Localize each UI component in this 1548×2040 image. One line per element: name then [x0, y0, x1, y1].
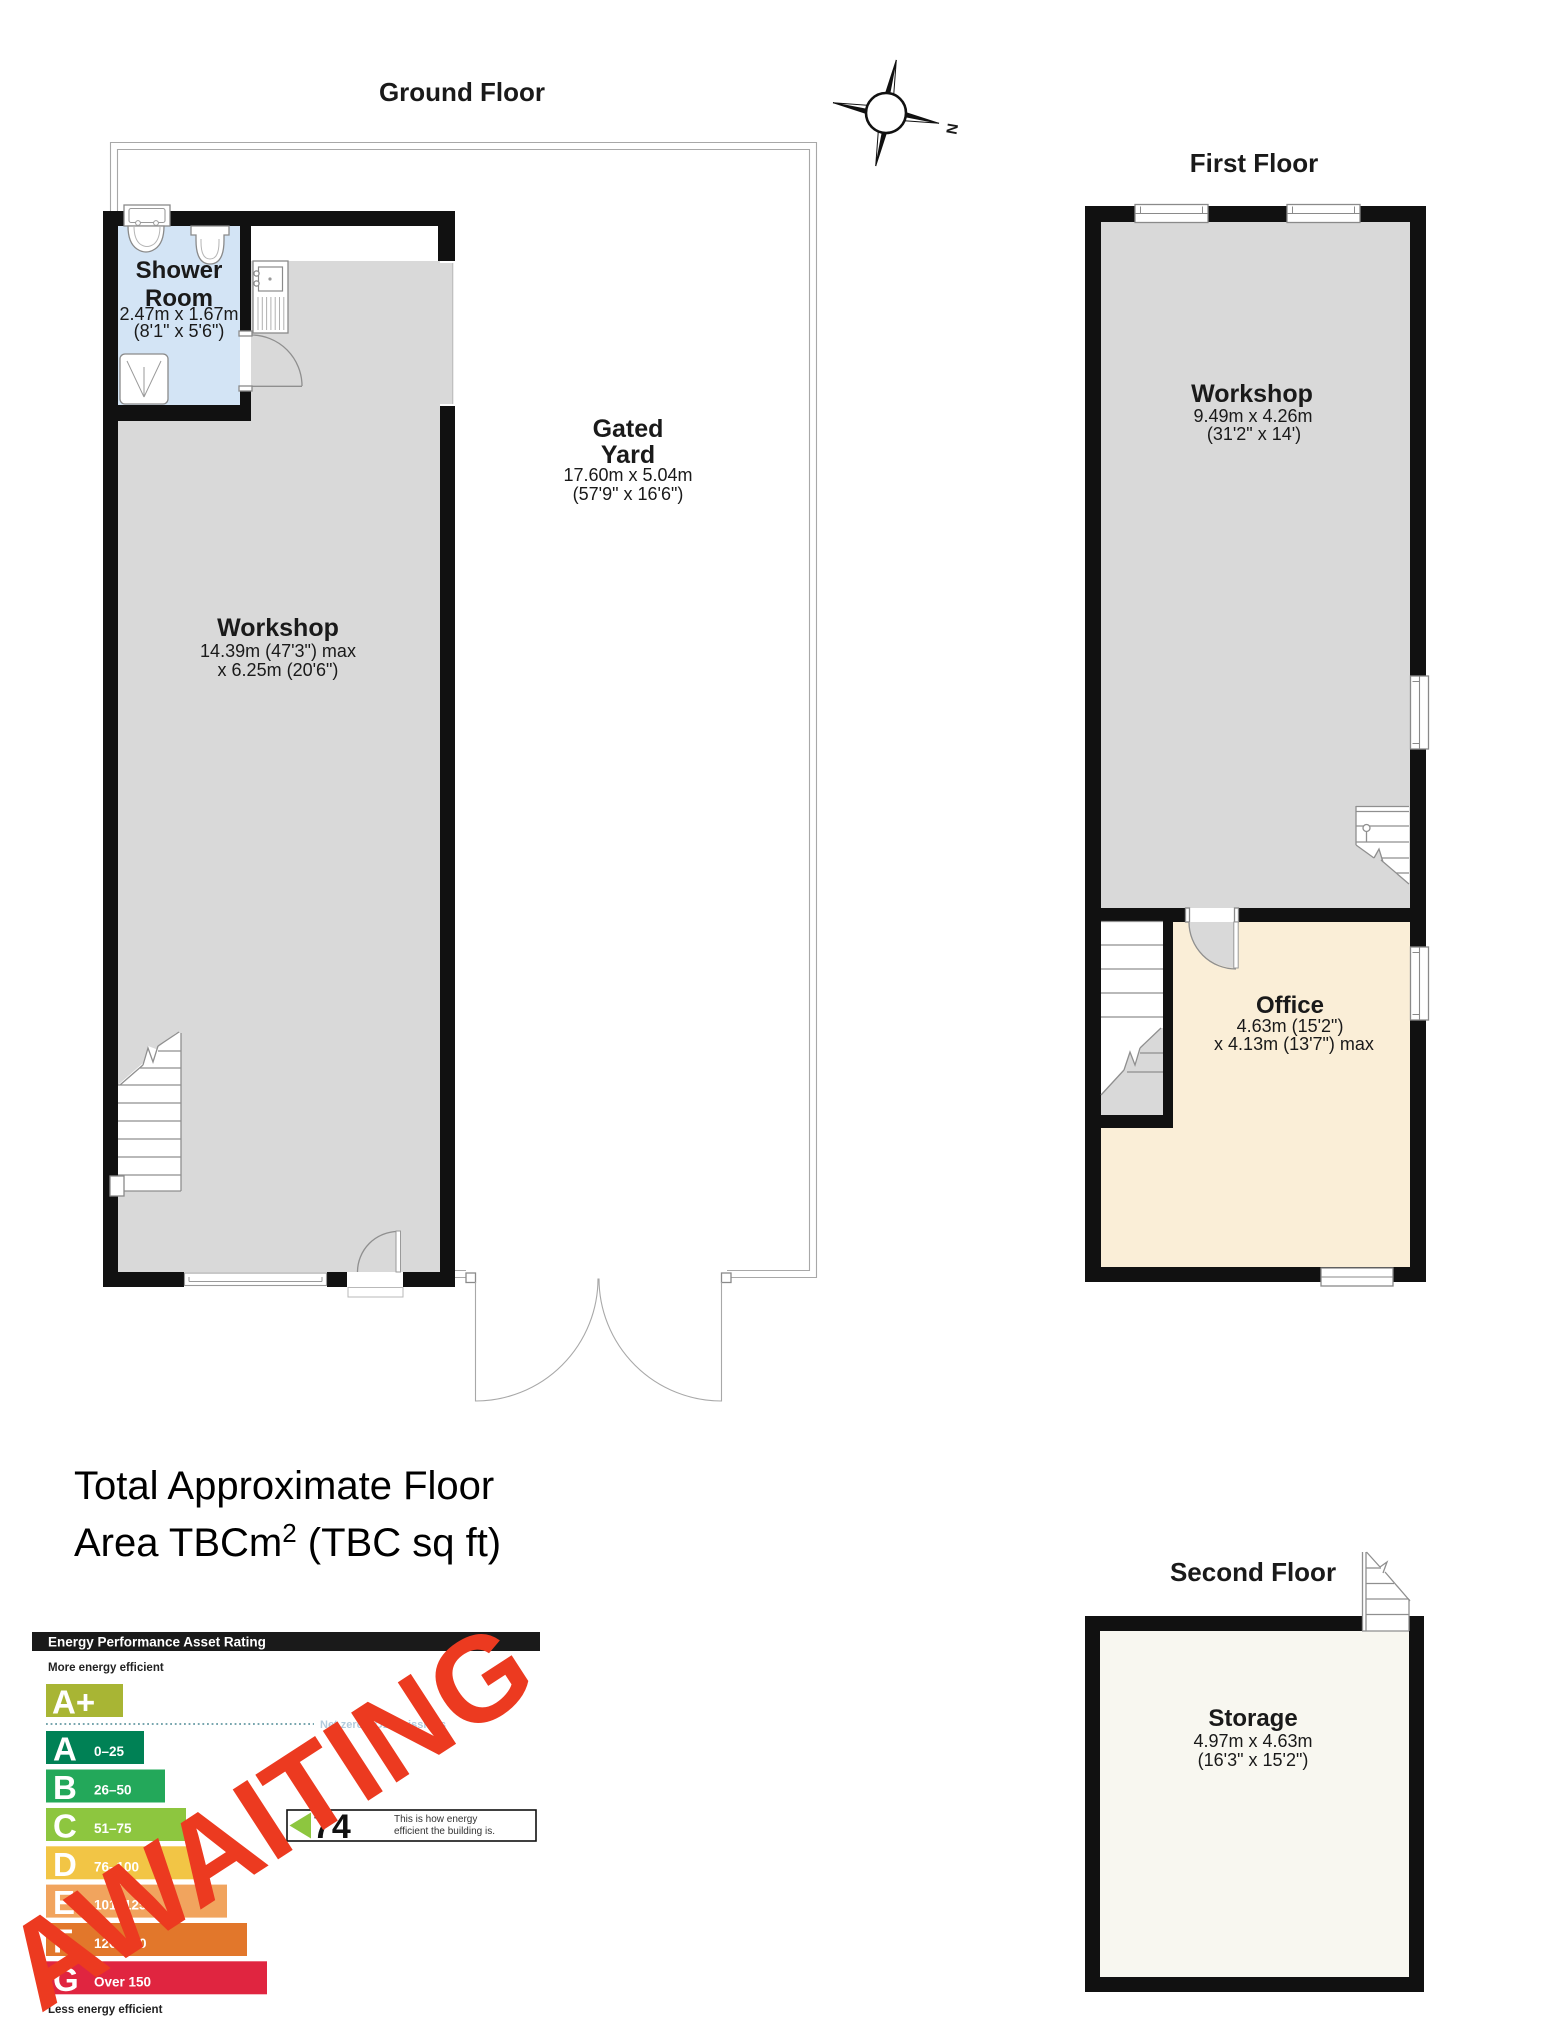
svg-text:26–50: 26–50 [94, 1783, 132, 1798]
svg-text:9.49m x 4.26m: 9.49m x 4.26m [1193, 406, 1312, 426]
svg-text:x 4.13m (13'7") max: x 4.13m (13'7") max [1214, 1034, 1374, 1054]
svg-text:Total Approximate Floor: Total Approximate Floor [74, 1464, 494, 1508]
svg-text:A: A [53, 1731, 77, 1768]
svg-text:Workshop: Workshop [1191, 380, 1313, 408]
svg-text:(31'2" x 14'): (31'2" x 14') [1207, 424, 1301, 444]
svg-text:4.97m x 4.63m: 4.97m x 4.63m [1193, 1731, 1312, 1751]
svg-text:Energy Performance Asset Ratin: Energy Performance Asset Rating [48, 1635, 266, 1650]
svg-text:C: C [53, 1808, 77, 1845]
svg-text:0–25: 0–25 [94, 1744, 125, 1759]
svg-text:This is how energy: This is how energy [394, 1814, 477, 1825]
svg-text:Shower: Shower [136, 257, 223, 284]
svg-text:4.63m (15'2"): 4.63m (15'2") [1237, 1016, 1344, 1036]
svg-text:x 6.25m (20'6"): x 6.25m (20'6") [218, 660, 339, 680]
svg-text:Workshop: Workshop [217, 614, 339, 642]
svg-text:More energy efficient: More energy efficient [48, 1662, 164, 1674]
svg-text:Office: Office [1256, 992, 1324, 1019]
svg-text:First Floor: First Floor [1190, 148, 1319, 178]
svg-text:A+: A+ [52, 1684, 95, 1721]
svg-text:(8'1" x 5'6"): (8'1" x 5'6") [134, 321, 225, 341]
svg-text:efficient the building is.: efficient the building is. [394, 1826, 495, 1837]
svg-text:(57'9" x 16'6"): (57'9" x 16'6") [573, 484, 684, 504]
svg-text:Storage: Storage [1208, 1705, 1297, 1732]
svg-text:(16'3" x 15'2"): (16'3" x 15'2") [1198, 1750, 1309, 1770]
svg-text:Gated: Gated [593, 415, 664, 443]
svg-text:14.39m (47'3") max: 14.39m (47'3") max [200, 641, 356, 661]
svg-text:B: B [53, 1769, 77, 1806]
svg-text:Ground Floor: Ground Floor [379, 77, 545, 107]
svg-text:17.60m x 5.04m: 17.60m x 5.04m [563, 465, 692, 485]
svg-text:Second Floor: Second Floor [1170, 1557, 1336, 1587]
